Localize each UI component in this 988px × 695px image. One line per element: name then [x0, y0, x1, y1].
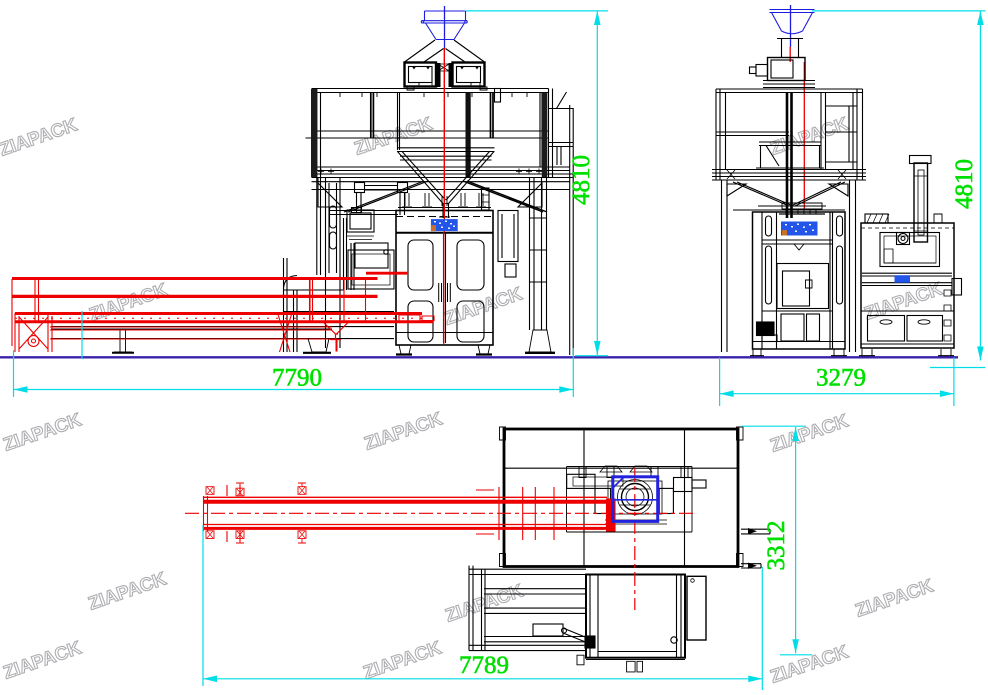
- svg-text:7789: 7789: [459, 652, 509, 679]
- svg-text:ZIAPACK: ZIAPACK: [442, 579, 526, 625]
- svg-text:ZIAPACK: ZIAPACK: [861, 277, 945, 323]
- svg-text:3312: 3312: [763, 521, 790, 571]
- svg-text:ZIAPACK: ZIAPACK: [767, 640, 851, 686]
- svg-text:ZIAPACK: ZIAPACK: [852, 574, 936, 620]
- svg-text:4810: 4810: [951, 159, 978, 209]
- svg-text:3279: 3279: [816, 365, 866, 392]
- svg-text:ZIAPACK: ZIAPACK: [0, 636, 84, 682]
- svg-text:ZIAPACK: ZIAPACK: [767, 409, 851, 455]
- svg-text:ZIAPACK: ZIAPACK: [86, 278, 170, 324]
- svg-text:ZIAPACK: ZIAPACK: [360, 636, 444, 682]
- svg-text:7790: 7790: [272, 365, 322, 392]
- svg-text:ZIAPACK: ZIAPACK: [0, 408, 84, 454]
- svg-text:ZIAPACK: ZIAPACK: [85, 567, 169, 613]
- svg-text:ZIAPACK: ZIAPACK: [361, 407, 445, 453]
- svg-text:ZIAPACK: ZIAPACK: [0, 113, 80, 159]
- svg-text:4810: 4810: [568, 155, 595, 205]
